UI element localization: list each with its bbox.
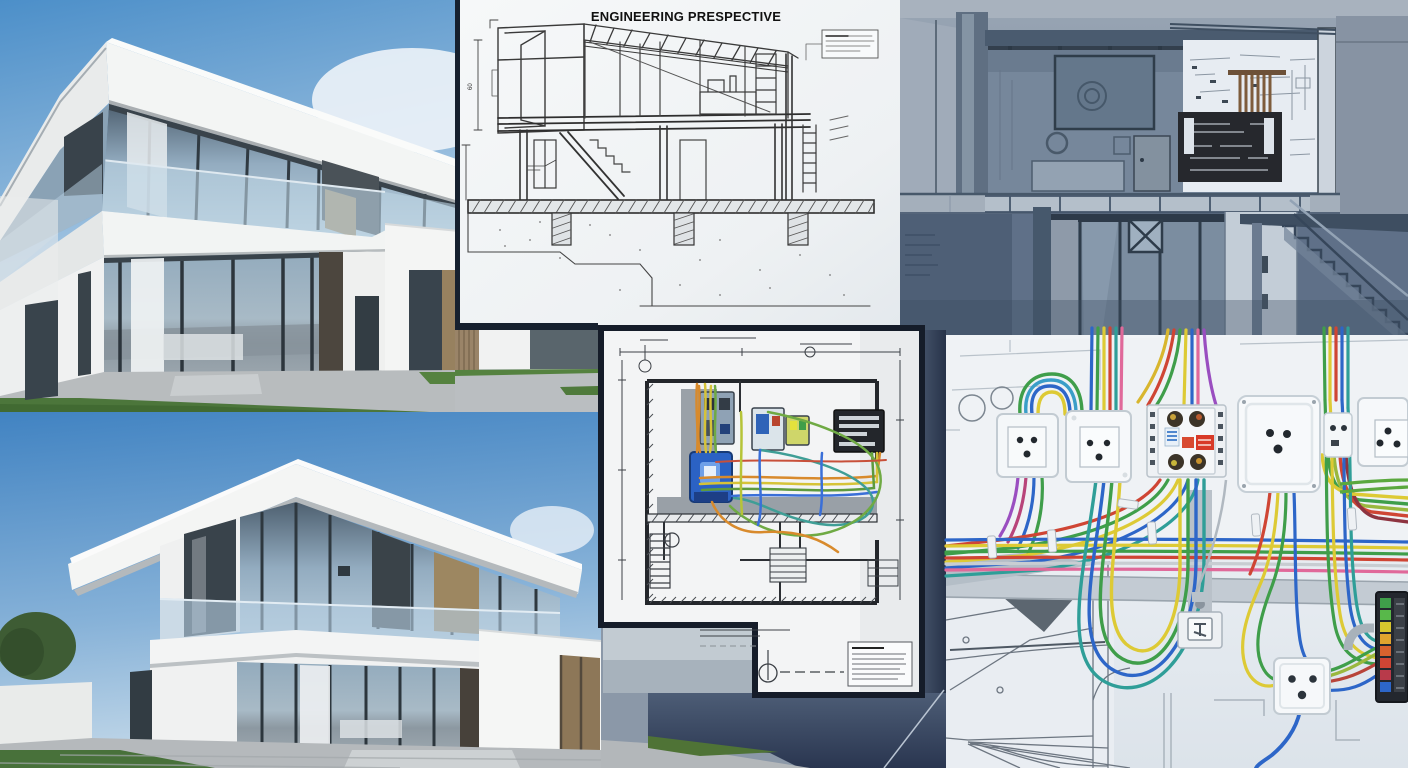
svg-text:60: 60 bbox=[468, 83, 474, 90]
svg-text:ENGINEERING PRESPECTIVE: ENGINEERING PRESPECTIVE bbox=[591, 9, 781, 24]
